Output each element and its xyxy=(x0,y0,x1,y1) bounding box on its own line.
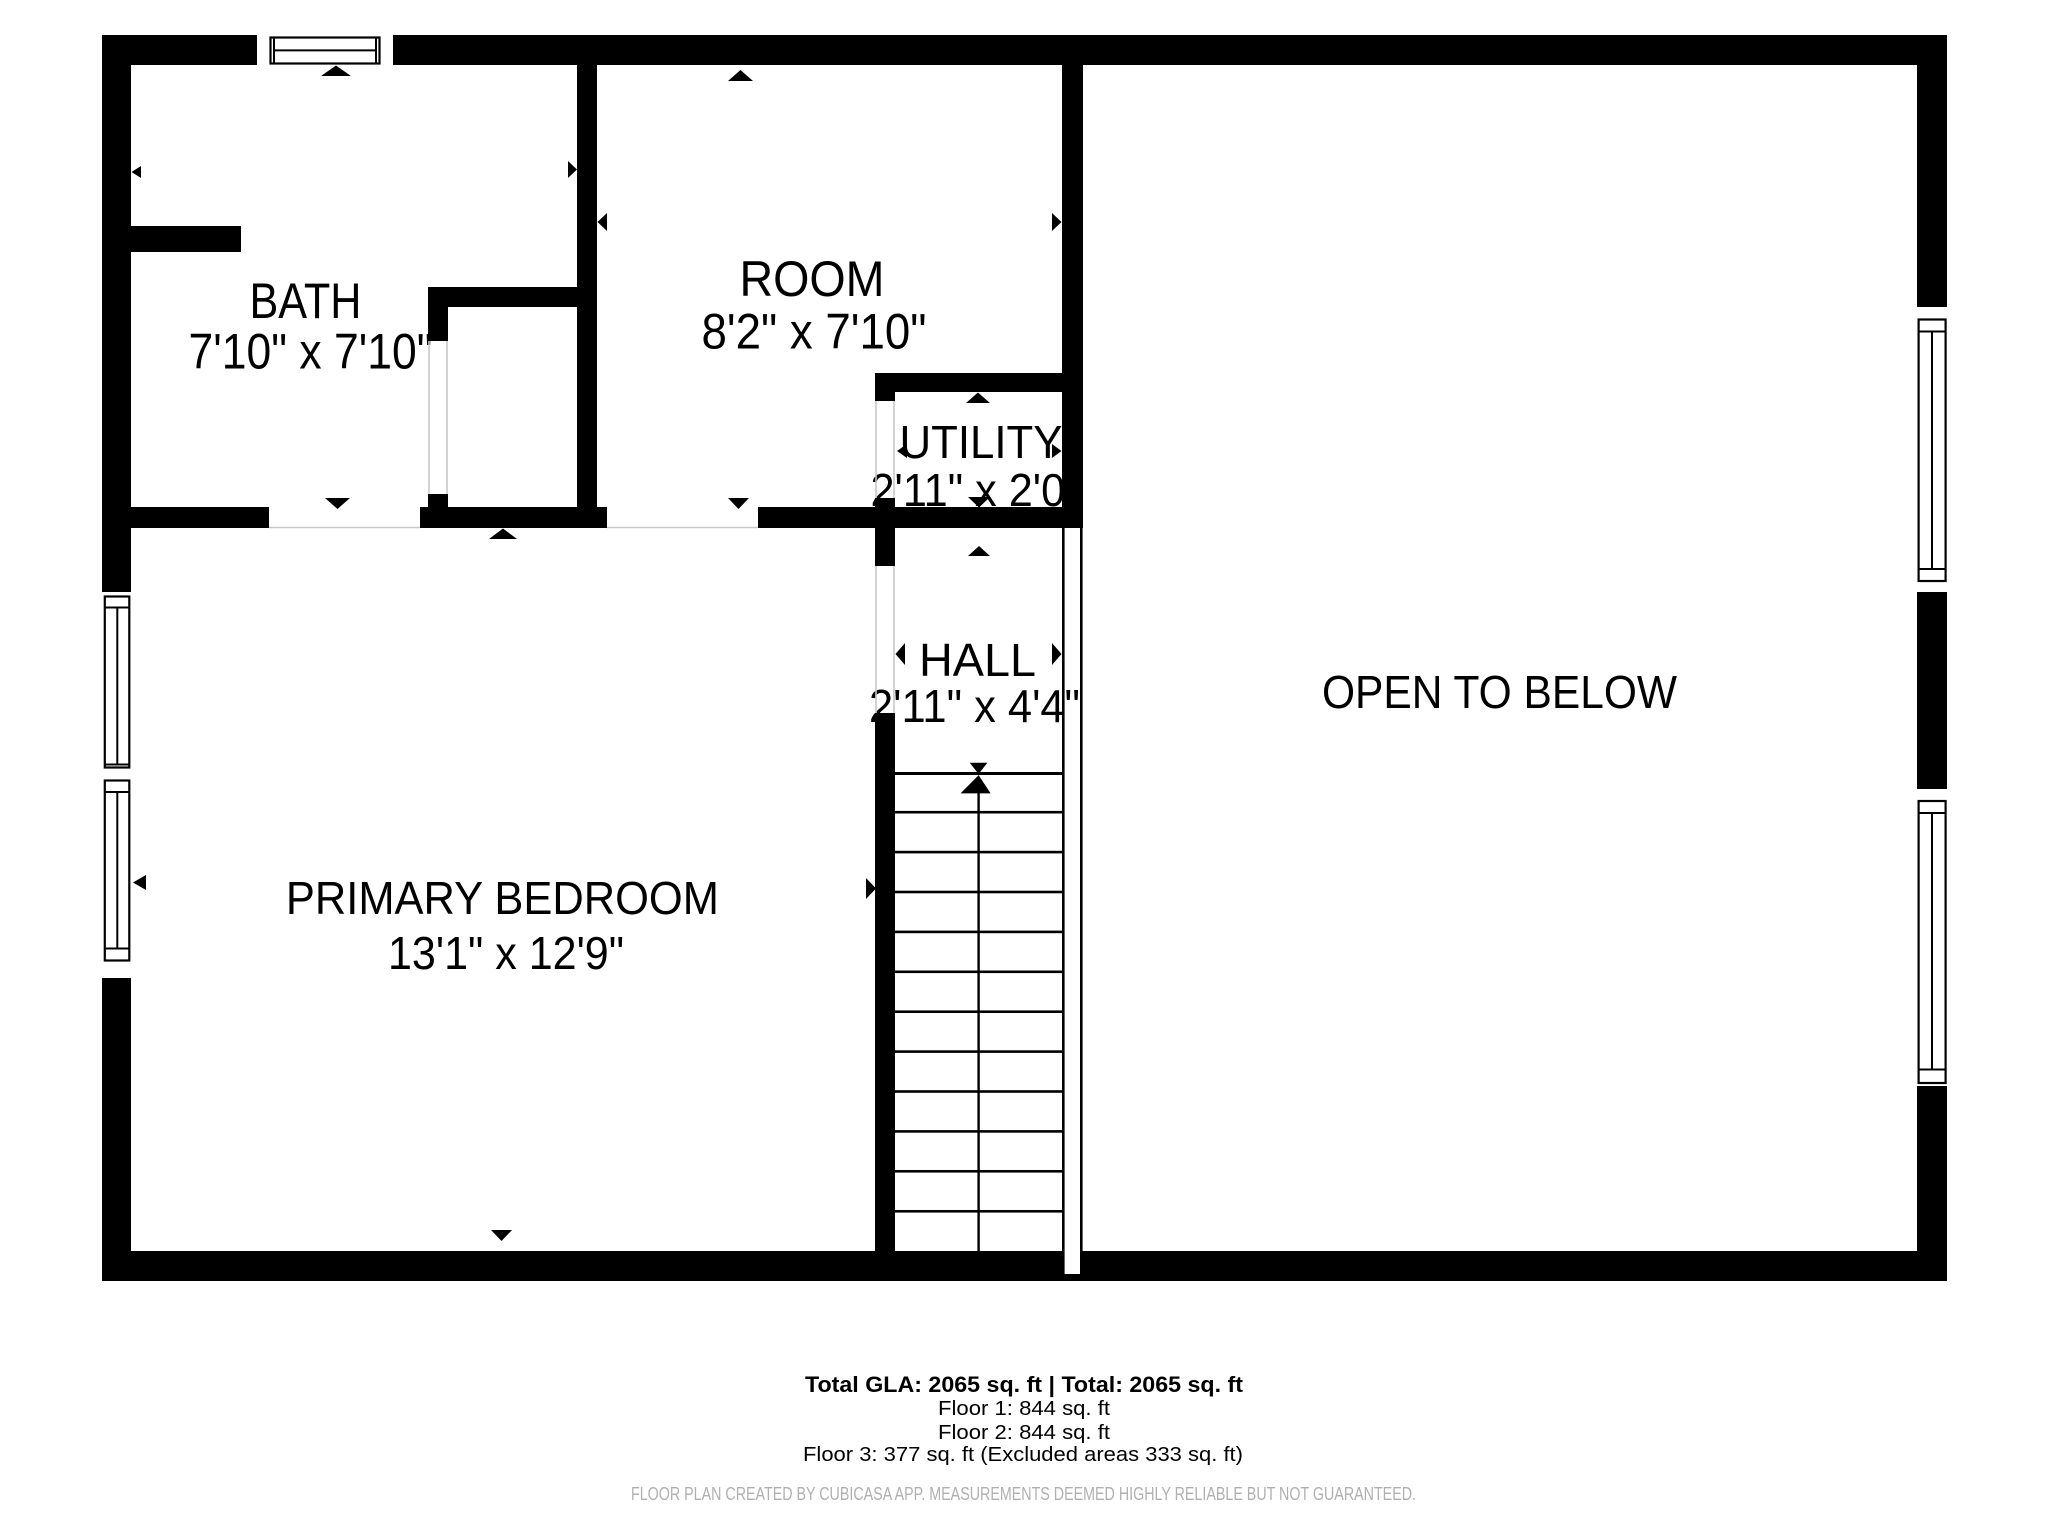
svg-text:8'2" x 7'10": 8'2" x 7'10" xyxy=(702,304,927,360)
svg-text:7'10" x 7'10": 7'10" x 7'10" xyxy=(189,324,433,380)
svg-text:OPEN TO BELOW: OPEN TO BELOW xyxy=(1322,666,1678,718)
svg-text:Floor 2: 844 sq. ft: Floor 2: 844 sq. ft xyxy=(938,1422,1110,1444)
svg-text:13'1" x 12'9": 13'1" x 12'9" xyxy=(388,927,624,979)
svg-text:PRIMARY BEDROOM: PRIMARY BEDROOM xyxy=(286,872,719,924)
svg-text:FLOOR PLAN CREATED BY CUBICASA: FLOOR PLAN CREATED BY CUBICASA APP. MEAS… xyxy=(631,1484,1416,1504)
svg-text:Floor 1: 844 sq. ft: Floor 1: 844 sq. ft xyxy=(938,1398,1110,1420)
svg-text:HALL: HALL xyxy=(919,634,1036,686)
svg-text:BATH: BATH xyxy=(250,273,362,329)
svg-text:UTILITY: UTILITY xyxy=(900,416,1063,468)
svg-text:ROOM: ROOM xyxy=(740,251,885,307)
svg-text:2'11" x 4'4": 2'11" x 4'4" xyxy=(869,680,1080,732)
svg-text:Floor 3: 377 sq. ft (Excluded: Floor 3: 377 sq. ft (Excluded areas 333 … xyxy=(803,1444,1243,1466)
svg-text:Total GLA: 2065 sq. ft | Total: Total GLA: 2065 sq. ft | Total: 2065 sq.… xyxy=(805,1372,1244,1397)
